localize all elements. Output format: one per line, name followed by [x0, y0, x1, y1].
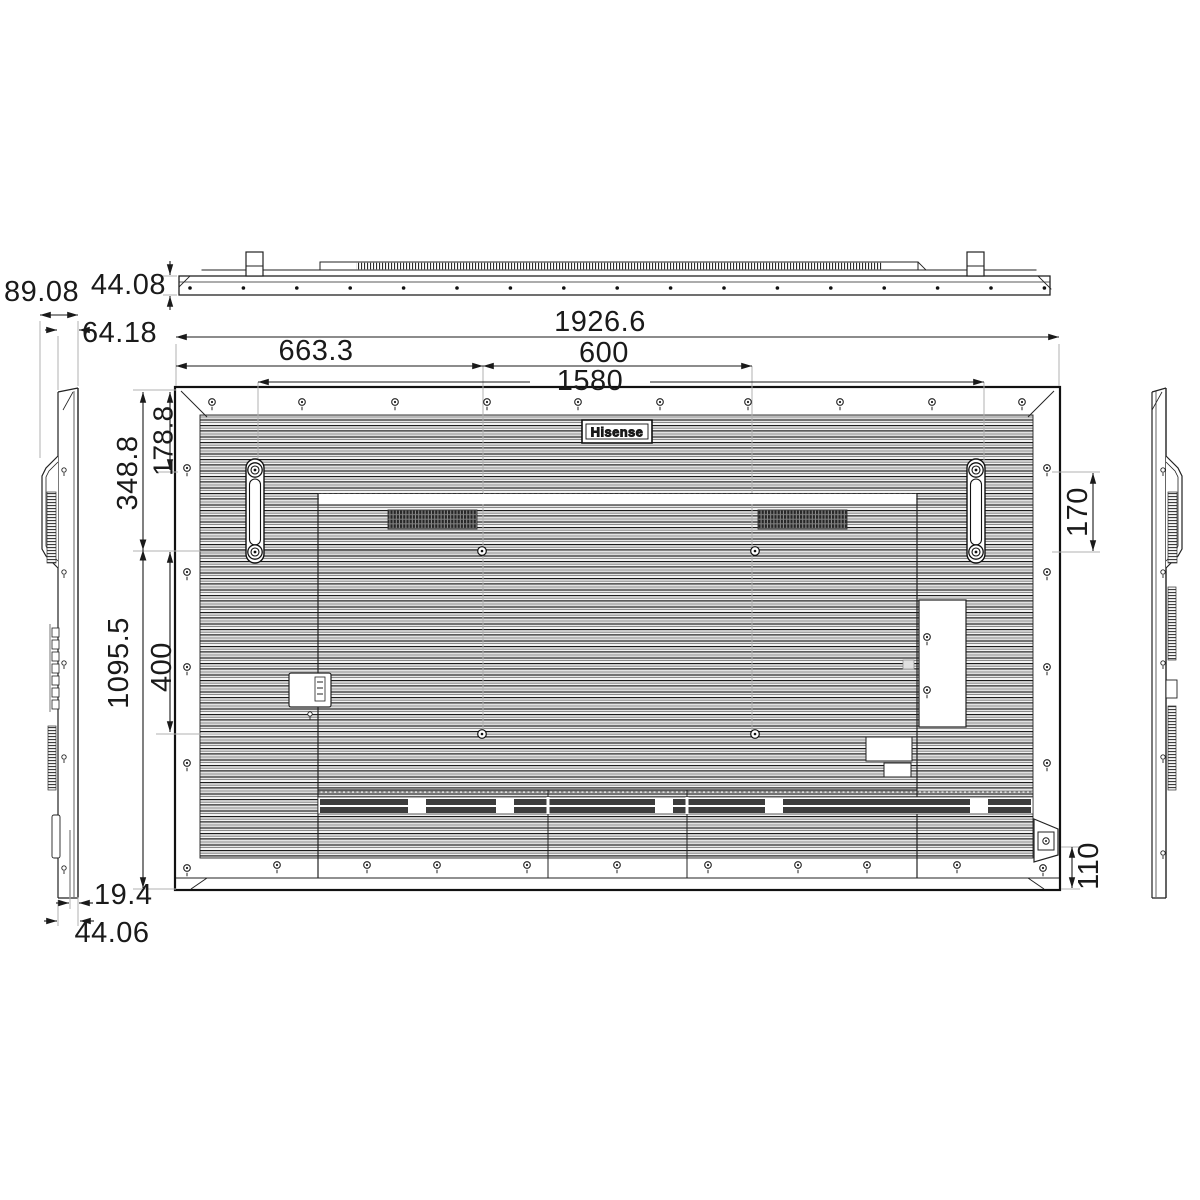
- top-view: [179, 252, 1051, 295]
- dim-side-depth-overall: 89.08: [4, 276, 79, 308]
- dim-edge-to-vesa: 663.3: [278, 335, 353, 367]
- speaker-grille-right: [758, 510, 847, 529]
- dim-vesa-height: 400: [146, 642, 178, 692]
- io-cover-panel: [919, 600, 966, 727]
- dim-bottom-inset: 19.4: [94, 879, 152, 911]
- top-vent-slots: [356, 263, 882, 270]
- right-side-handle-grip: [1168, 492, 1177, 563]
- brand-logo: Hisense: [582, 420, 652, 443]
- dim-bottom-depth: 44.06: [74, 917, 149, 949]
- dim-side-depth-body: 64.18: [82, 317, 157, 349]
- service-box: [289, 673, 331, 707]
- right-side-vent-upper: [1168, 587, 1176, 660]
- rating-label-large: [866, 737, 912, 761]
- dim-top-thickness: 44.08: [91, 269, 166, 301]
- right-side-vent-lower: [1168, 706, 1176, 790]
- dim-top-to-vesa: 348.8: [112, 435, 144, 510]
- dim-handle-span: 1580: [557, 365, 624, 397]
- dim-overall-width: 1926.6: [554, 306, 646, 338]
- display-dimension-drawing: Hisense 44.08 89.08 64.18 1926.6 663.3 6…: [0, 0, 1200, 1200]
- right-side-view: [1152, 388, 1182, 898]
- rating-label-small: [884, 763, 911, 777]
- technical-drawing-page: Hisense 44.08 89.08 64.18 1926.6 663.3 6…: [0, 0, 1200, 1200]
- dim-inlet-from-bottom: 110: [1073, 842, 1105, 890]
- right-side-connector: [1166, 680, 1177, 698]
- left-side-io-ports: [52, 628, 59, 709]
- speaker-grille-left: [388, 510, 477, 529]
- dim-overall-height: 1095.5: [103, 617, 135, 709]
- dim-handle-hole-pitch: 170: [1062, 487, 1094, 537]
- left-side-recess: [52, 815, 60, 858]
- io-label: [903, 660, 914, 669]
- brand-logo-text: Hisense: [591, 425, 644, 440]
- left-side-vent: [48, 726, 56, 790]
- dim-top-to-handle-hole: 178.8: [148, 406, 179, 476]
- left-side-handle-grip: [47, 492, 56, 563]
- mount-plate-top-band: [319, 494, 917, 505]
- left-side-view: [42, 388, 78, 898]
